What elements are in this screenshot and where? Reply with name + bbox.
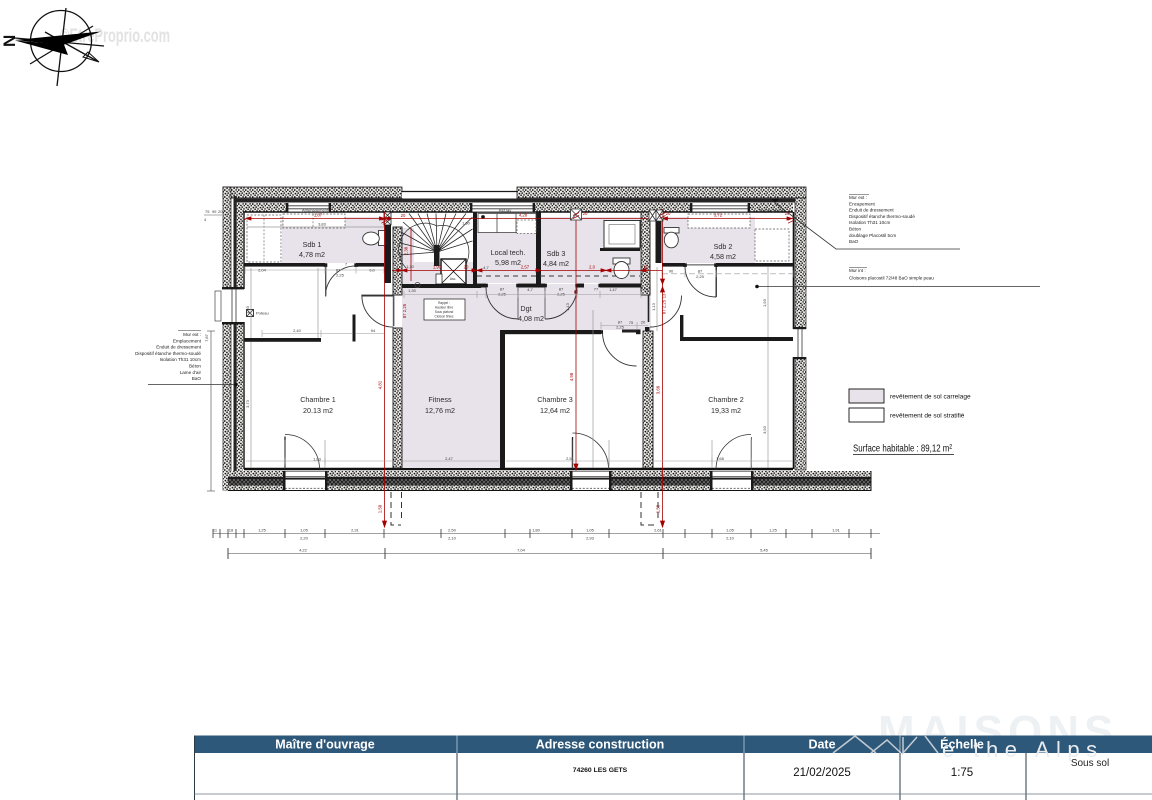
svg-text:Adresse construction: Adresse construction: [536, 738, 665, 752]
svg-text:Sdb 1: Sdb 1: [303, 240, 322, 249]
svg-text:95: 95: [212, 209, 217, 214]
svg-text:20.13 m2: 20.13 m2: [303, 406, 333, 415]
svg-text:2,25: 2,25: [616, 325, 625, 330]
svg-text:revêtement de sol carrelage: revêtement de sol carrelage: [890, 394, 971, 401]
svg-text:20: 20: [644, 287, 649, 292]
svg-text:Poteau: Poteau: [256, 311, 269, 316]
svg-text:Mur ext :: Mur ext :: [849, 195, 867, 200]
svg-text:20: 20: [583, 211, 588, 216]
svg-text:13: 13: [662, 293, 667, 298]
svg-text:2,31: 2,31: [351, 528, 360, 533]
svg-text:3,83: 3,83: [318, 222, 327, 227]
svg-text:4,08 m2: 4,08 m2: [518, 314, 544, 323]
svg-text:5,45: 5,45: [760, 548, 769, 553]
svg-text:7,87: 7,87: [204, 333, 209, 342]
svg-text:2,40: 2,40: [293, 328, 302, 333]
svg-text:2,93: 2,93: [586, 536, 595, 541]
svg-text:77: 77: [594, 287, 599, 292]
svg-text:Cloisons placostil 72/48 BaO s: Cloisons placostil 72/48 BaO simple peau: [849, 276, 934, 281]
svg-text:4,7: 4,7: [483, 265, 489, 270]
svg-text:Béton: Béton: [849, 227, 861, 232]
svg-text:3,68: 3,68: [656, 385, 661, 394]
svg-text:2,04: 2,04: [258, 268, 267, 273]
svg-text:12,76 m2: 12,76 m2: [425, 406, 455, 415]
svg-text:1,25: 1,25: [258, 528, 267, 533]
svg-text:4,81: 4,81: [378, 380, 383, 389]
svg-text:Enduit de dressement: Enduit de dressement: [849, 208, 894, 213]
svg-text:2,20: 2,20: [300, 536, 309, 541]
svg-text:Chambre 2: Chambre 2: [708, 395, 744, 404]
svg-text:2,25: 2,25: [336, 273, 345, 278]
svg-text:74260 LES GETS: 74260 LES GETS: [573, 767, 628, 774]
svg-text:Mur int :: Mur int :: [849, 268, 866, 273]
svg-text:1,91: 1,91: [832, 528, 841, 533]
svg-text:Rappel :: Rappel :: [438, 301, 450, 305]
svg-text:BaO: BaO: [192, 376, 202, 381]
svg-text:Dispositif étanche thermo-soud: Dispositif étanche thermo-soudé: [135, 351, 201, 356]
svg-text:1,25: 1,25: [769, 528, 778, 533]
svg-text:1,87: 1,87: [314, 213, 323, 218]
svg-text:4,22: 4,22: [299, 548, 308, 553]
svg-text:1,60: 1,60: [462, 221, 471, 226]
svg-text:1,05: 1,05: [586, 528, 595, 533]
svg-text:19,33 m2: 19,33 m2: [711, 406, 741, 415]
svg-text:4,7: 4,7: [527, 287, 533, 292]
svg-text:doublage Placostil 5cm: doublage Placostil 5cm: [849, 233, 896, 238]
svg-text:75: 75: [205, 209, 210, 214]
svg-text:2,0: 2,0: [589, 265, 596, 270]
svg-text:1,80: 1,80: [532, 528, 541, 533]
svg-text:2,38: 2,38: [404, 246, 409, 255]
svg-text:75: 75: [629, 320, 634, 325]
svg-text:Local tech.: Local tech.: [491, 248, 526, 257]
svg-text:2,10: 2,10: [448, 536, 457, 541]
svg-text:4,84 m2: 4,84 m2: [543, 259, 569, 268]
svg-text:Cloison finies: Cloison finies: [435, 315, 454, 319]
svg-text:90: 90: [669, 269, 674, 274]
svg-text:Amenagement: Amenagement: [302, 208, 329, 213]
svg-text:4,98: 4,98: [569, 372, 574, 381]
svg-text:7,04: 7,04: [517, 548, 526, 553]
svg-text:N: N: [0, 35, 19, 47]
svg-text:5,98 m2: 5,98 m2: [495, 258, 521, 267]
svg-text:Fitness: Fitness: [428, 395, 452, 404]
svg-text:87 2,25: 87 2,25: [662, 299, 667, 314]
svg-text:revêtement de sol stratifié: revêtement de sol stratifié: [890, 413, 965, 420]
svg-text:Mur ext :: Mur ext :: [183, 332, 201, 337]
svg-text:9,0: 9,0: [369, 268, 375, 273]
svg-text:Maître d'ouvrage: Maître d'ouvrage: [275, 738, 375, 752]
svg-text:2,25: 2,25: [557, 292, 566, 297]
svg-text:Hauteur libre: Hauteur libre: [435, 306, 453, 310]
svg-text:2,51: 2,51: [566, 456, 575, 461]
svg-text:1,47: 1,47: [609, 287, 618, 292]
svg-text:Dgt: Dgt: [520, 304, 531, 313]
svg-text:1,30: 1,30: [408, 288, 417, 293]
svg-text:2,50: 2,50: [448, 528, 457, 533]
svg-text:2,25: 2,25: [498, 292, 507, 297]
svg-text:2,47: 2,47: [445, 456, 454, 461]
svg-text:87 2,25: 87 2,25: [402, 303, 407, 318]
svg-text:1,58: 1,58: [378, 504, 383, 513]
svg-text:20: 20: [644, 265, 649, 270]
svg-text:20: 20: [464, 265, 469, 270]
svg-text:4,28: 4,28: [519, 213, 528, 218]
svg-text:2,10: 2,10: [726, 536, 735, 541]
svg-text:Sous plafond: Sous plafond: [435, 310, 454, 314]
svg-text:Asc.: Asc.: [450, 277, 457, 281]
svg-text:3,93: 3,93: [762, 425, 767, 434]
svg-text:BaO: BaO: [849, 239, 859, 244]
svg-text:Lame d'air: Lame d'air: [180, 370, 202, 375]
svg-text:1,93: 1,93: [245, 305, 250, 314]
svg-text:Enduit de dressement: Enduit de dressement: [156, 345, 201, 350]
svg-text:Isolation Th31 10cm: Isolation Th31 10cm: [160, 357, 201, 362]
svg-text:Emplacement: Emplacement: [173, 338, 202, 343]
svg-text:Dispositif étanche thermo-soud: Dispositif étanche thermo-soudé: [849, 214, 915, 219]
svg-text:21/02/2025: 21/02/2025: [793, 767, 851, 779]
svg-text:Béton: Béton: [189, 364, 201, 369]
svg-text:Date: Date: [808, 738, 835, 752]
svg-text:Chambre 3: Chambre 3: [537, 395, 573, 404]
svg-text:1,30: 1,30: [406, 264, 415, 269]
svg-text:2,25: 2,25: [696, 274, 705, 279]
svg-text:1,05: 1,05: [726, 528, 735, 533]
svg-text:94: 94: [371, 328, 376, 333]
svg-text:4,58 m2: 4,58 m2: [710, 252, 736, 261]
svg-text:Sdb 3: Sdb 3: [547, 249, 566, 258]
svg-text:1,05: 1,05: [300, 528, 309, 533]
svg-text:4,78 m2: 4,78 m2: [299, 250, 325, 259]
svg-text:Surface habitable : 89,12 m²: Surface habitable : 89,12 m²: [853, 444, 953, 455]
svg-text:1,13: 1,13: [565, 302, 570, 311]
svg-text:1,90: 1,90: [433, 265, 442, 270]
svg-text:Encapement: Encapement: [849, 201, 876, 206]
svg-text:87: 87: [698, 269, 703, 274]
svg-text:Chambre 1: Chambre 1: [300, 395, 336, 404]
svg-text:2,61: 2,61: [654, 528, 663, 533]
svg-text:3,72: 3,72: [714, 213, 723, 218]
svg-text:3,73: 3,73: [245, 399, 250, 408]
svg-text:2,57: 2,57: [521, 265, 530, 270]
svg-text:Isolation Th31 10cm: Isolation Th31 10cm: [849, 220, 890, 225]
svg-text:1,68: 1,68: [716, 456, 725, 461]
svg-text:Ref.lav: Ref.lav: [499, 208, 511, 213]
svg-text:Sdb 2: Sdb 2: [714, 242, 733, 251]
svg-text:1,13: 1,13: [651, 302, 656, 311]
svg-text:20: 20: [218, 209, 223, 214]
svg-text:18: 18: [229, 528, 234, 533]
svg-text:1,93: 1,93: [762, 298, 767, 307]
svg-text:20: 20: [666, 211, 671, 216]
svg-text:20: 20: [401, 213, 406, 218]
svg-text:1:75: 1:75: [951, 767, 973, 779]
svg-text:20: 20: [641, 320, 646, 325]
svg-text:Sous sol: Sous sol: [1071, 758, 1109, 769]
svg-text:12,64 m2: 12,64 m2: [540, 406, 570, 415]
